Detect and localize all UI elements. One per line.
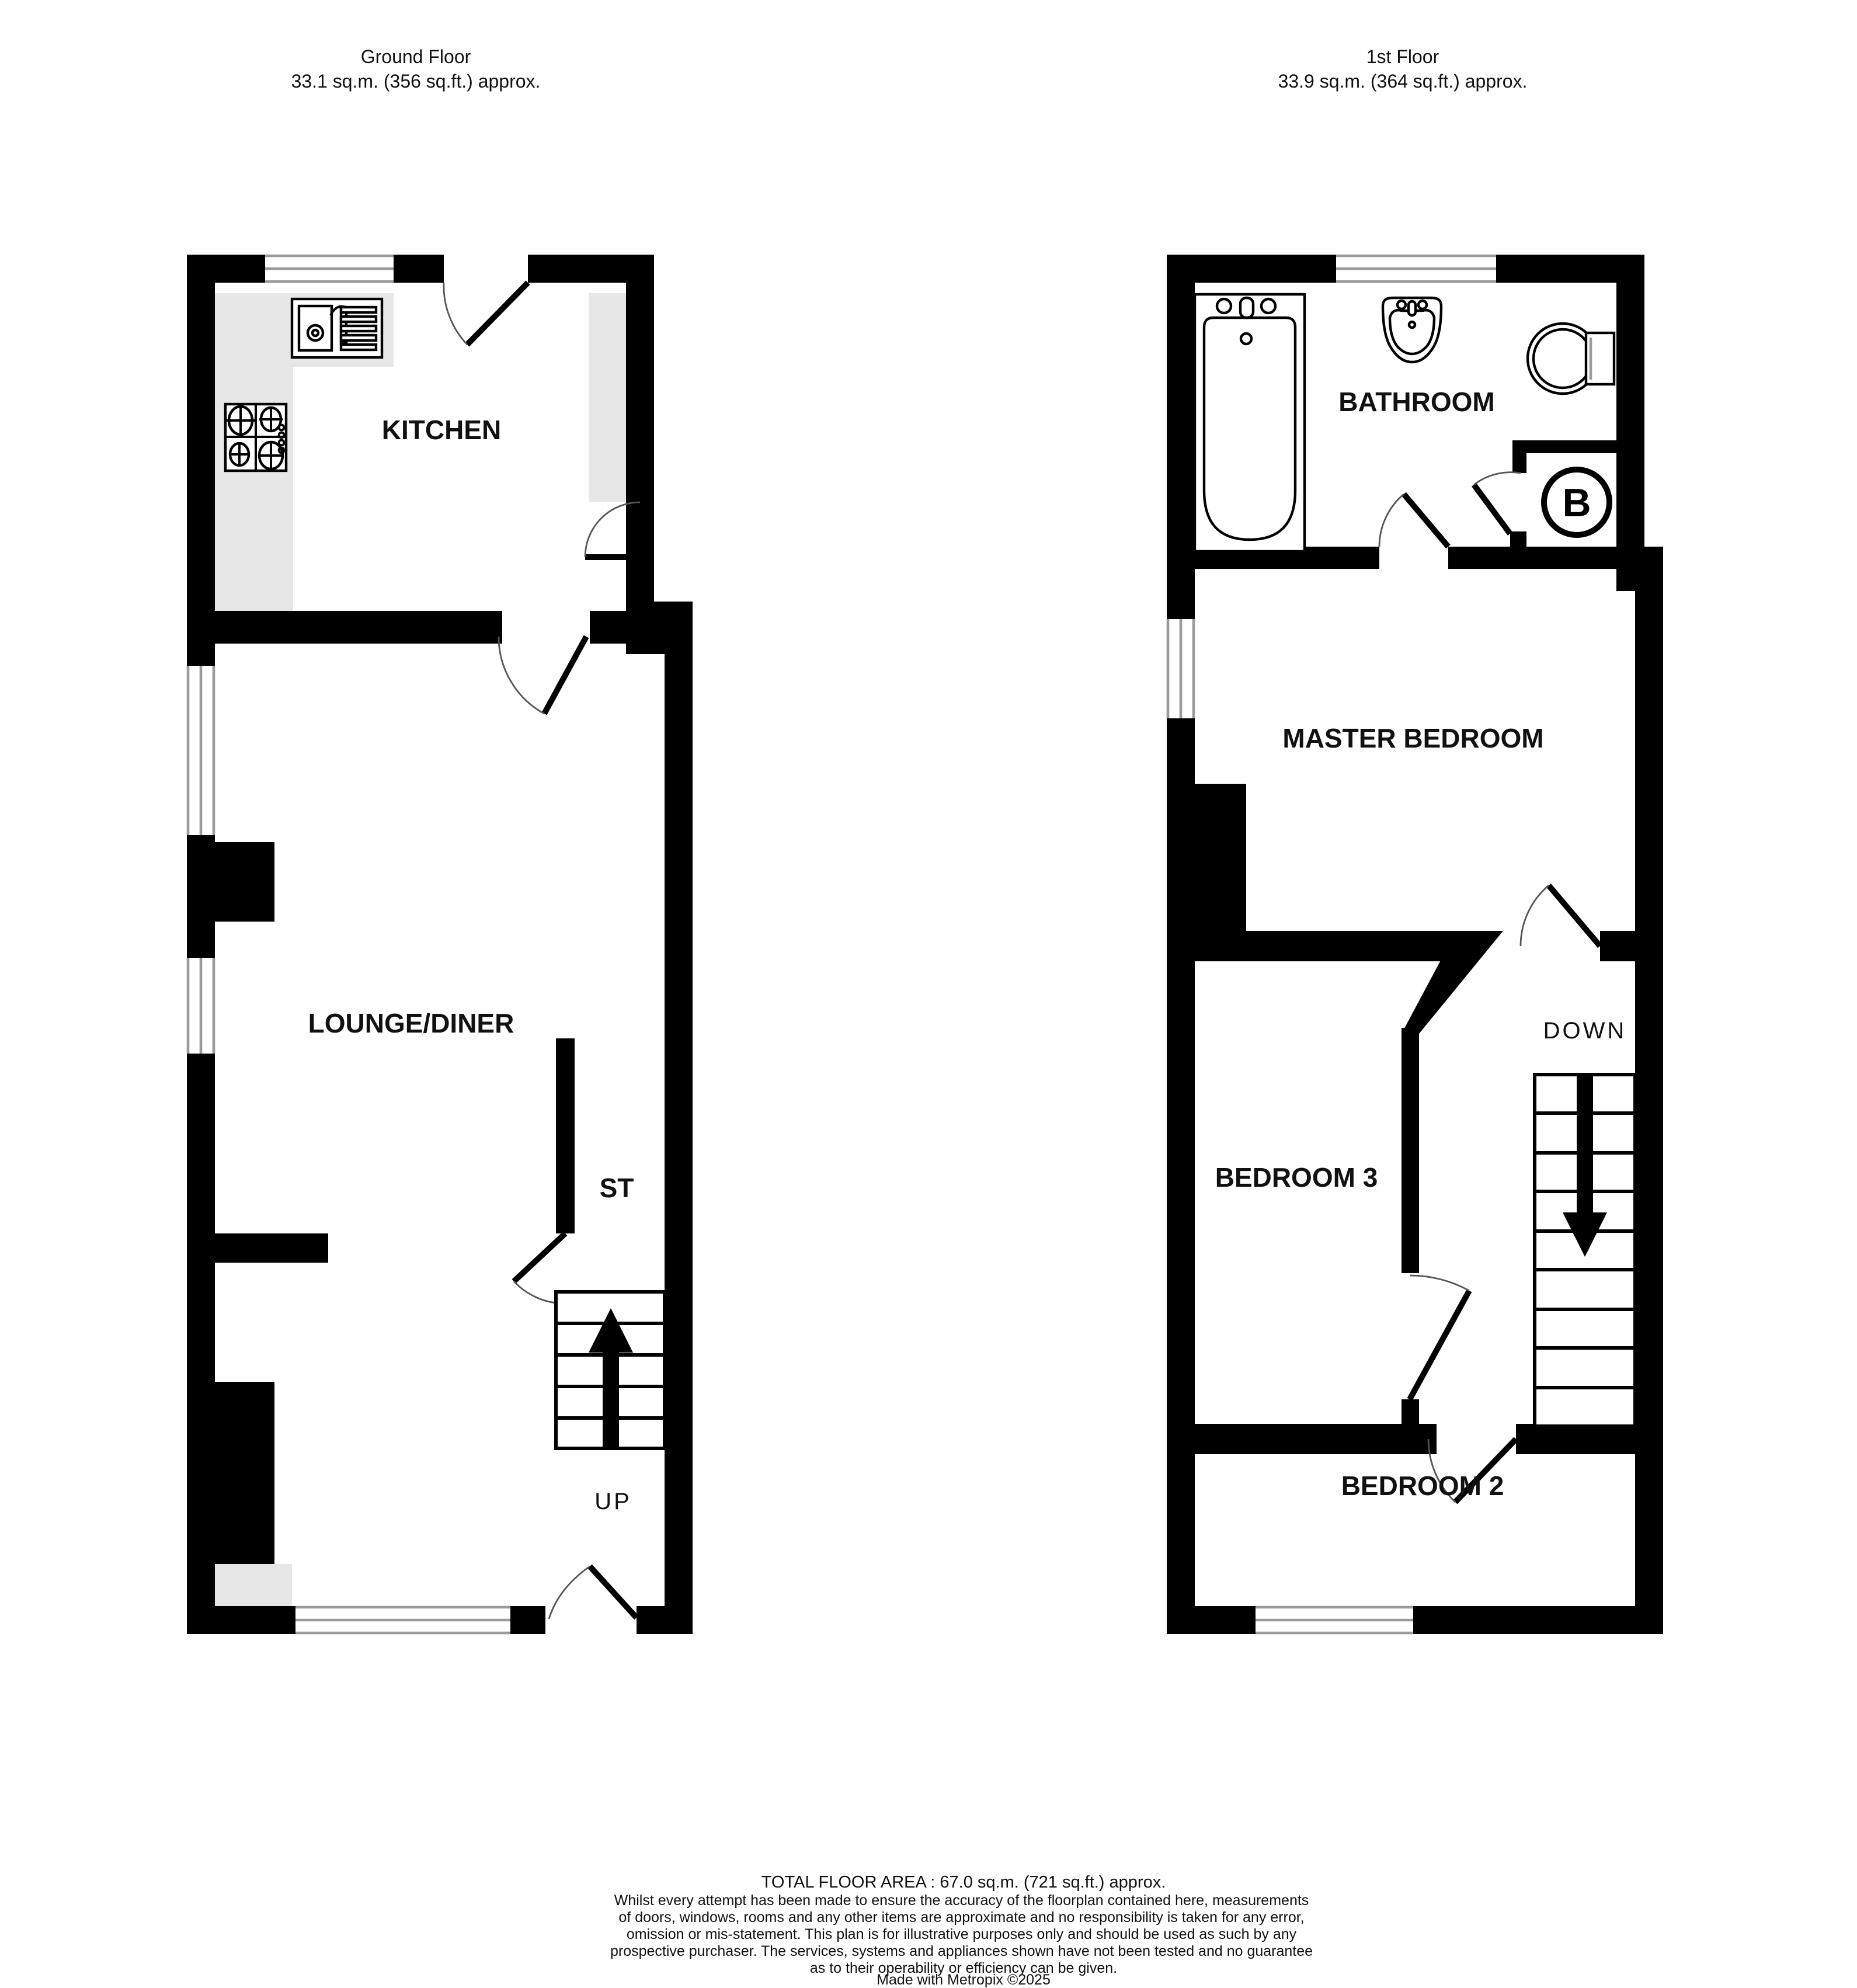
front-door bbox=[549, 1566, 637, 1619]
toilet-icon bbox=[1528, 324, 1614, 394]
bathroom-door bbox=[1379, 494, 1448, 547]
fireplace-hearth bbox=[215, 1564, 292, 1606]
total-floor-area: TOTAL FLOOR AREA : 67.0 sq.m. (721 sq.ft… bbox=[761, 1873, 1166, 1892]
master-bedroom-label: MASTER BEDROOM bbox=[1282, 723, 1543, 753]
back-door bbox=[444, 283, 528, 345]
stairs-up bbox=[556, 1292, 665, 1448]
stairs-down-label: DOWN bbox=[1543, 1018, 1627, 1044]
bedroom2-bottom-window bbox=[1256, 1606, 1413, 1634]
lounge-bottom-window bbox=[295, 1606, 510, 1634]
disclaimer-line: prospective purchaser. The services, sys… bbox=[610, 1943, 1313, 1959]
kitchen-lounge-door bbox=[499, 637, 586, 714]
sink-icon bbox=[292, 299, 382, 357]
bathroom-top-window bbox=[1336, 255, 1496, 283]
ground-floor-area: 33.1 sq.m. (356 sq.ft.) approx. bbox=[291, 71, 541, 92]
lounge-left-window-lower bbox=[187, 958, 215, 1054]
disclaimer-line: of doors, windows, rooms and any other i… bbox=[618, 1909, 1304, 1926]
lounge-left-window-upper bbox=[187, 666, 215, 835]
bath-icon bbox=[1195, 294, 1305, 551]
boiler-cupboard-door bbox=[1474, 472, 1521, 534]
lounge-label: LOUNGE/DINER bbox=[308, 1008, 514, 1038]
first-floor-plan: 1st Floor 33.9 sq.m. (364 sq.ft.) approx… bbox=[1167, 46, 1663, 1634]
kitchen-label: KITCHEN bbox=[382, 415, 501, 445]
svg-text:Whilst every attempt has been: Whilst every attempt has been made to en… bbox=[610, 1892, 1317, 1976]
bathroom-label: BATHROOM bbox=[1338, 387, 1494, 417]
master-left-window bbox=[1167, 619, 1195, 718]
bedroom2-label: BEDROOM 2 bbox=[1341, 1471, 1504, 1501]
hob-icon bbox=[225, 404, 286, 471]
first-floor-title: 1st Floor bbox=[1366, 46, 1439, 67]
first-floor-area: 33.9 sq.m. (364 sq.ft.) approx. bbox=[1278, 71, 1528, 92]
stairs-up-label: UP bbox=[594, 1489, 632, 1514]
floorplan-canvas: Ground Floor 33.1 sq.m. (356 sq.ft.) app… bbox=[0, 0, 1857, 1988]
metropix-credit: Made with Metropix ©2025 bbox=[877, 1972, 1051, 1988]
bedroom3-label: BEDROOM 3 bbox=[1215, 1162, 1378, 1193]
store-label: ST bbox=[600, 1173, 634, 1203]
disclaimer-line: omission or mis-statement. This plan is … bbox=[627, 1926, 1297, 1942]
footer: TOTAL FLOOR AREA : 67.0 sq.m. (721 sq.ft… bbox=[610, 1873, 1317, 1988]
basin-icon bbox=[1383, 298, 1441, 362]
kitchen-top-window bbox=[265, 255, 394, 283]
stairs-down bbox=[1535, 1075, 1635, 1426]
master-bedroom-door bbox=[1521, 885, 1600, 946]
disclaimer-line: Whilst every attempt has been made to en… bbox=[614, 1892, 1309, 1909]
boiler-icon: B bbox=[1544, 470, 1609, 535]
boiler-label: B bbox=[1562, 481, 1591, 525]
ground-floor-title: Ground Floor bbox=[361, 46, 471, 67]
ground-floor-plan: Ground Floor 33.1 sq.m. (356 sq.ft.) app… bbox=[187, 46, 693, 1634]
bedroom3-door bbox=[1410, 1275, 1469, 1399]
